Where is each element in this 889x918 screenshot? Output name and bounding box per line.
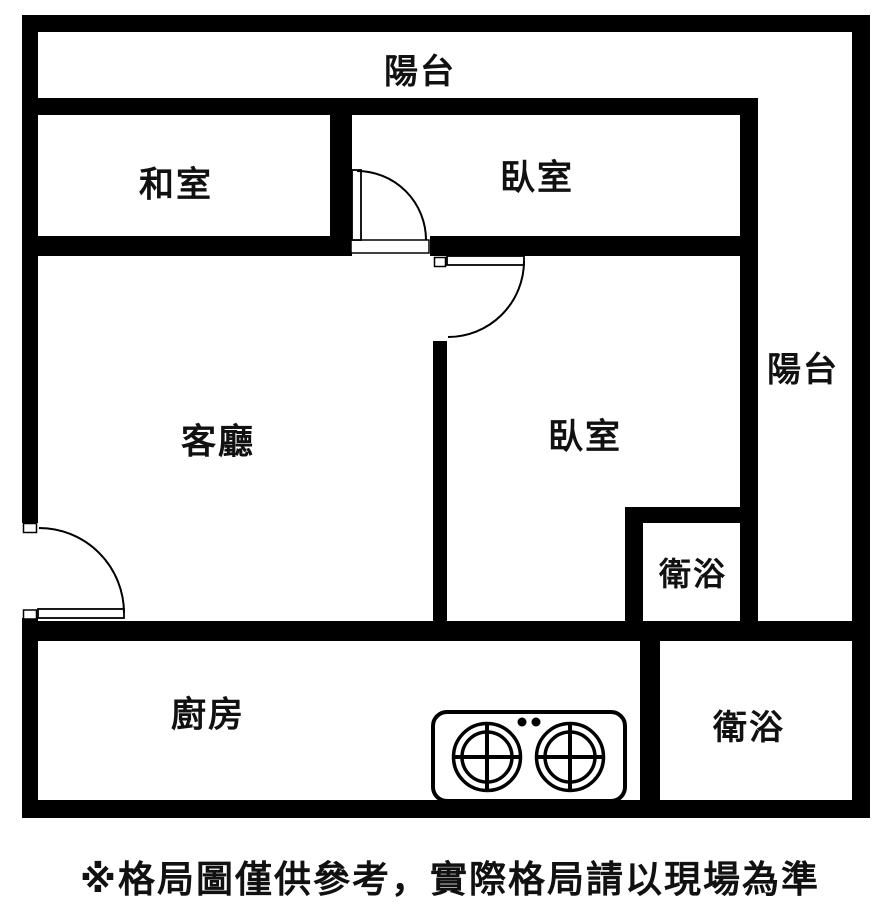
door-sill [24, 524, 37, 533]
stove-knob [532, 718, 541, 727]
door-bedroom-top [351, 170, 429, 253]
room-label-bedroom-top: 臥室 [500, 161, 574, 196]
door-leaf [38, 609, 124, 618]
room-label-living: 客廳 [181, 425, 255, 460]
stove-icon [433, 712, 625, 801]
door-living-room [24, 524, 125, 620]
room-label-bedroom-main: 臥室 [548, 420, 622, 455]
floor-plan: 陽台 和室 臥室 陽台 客廳 臥室 衛浴 廚房 衛浴 ※格局圖僅供參考，實際格局… [0, 0, 889, 918]
door-swing-arc [448, 261, 524, 337]
door-bedroom-main [435, 256, 525, 337]
room-label-bath-large: 衛浴 [713, 711, 785, 745]
room-label-tatami: 和室 [139, 168, 213, 203]
room-label-balcony-right: 陽台 [767, 353, 839, 387]
stove-knob [518, 718, 527, 727]
room-label-bath-small: 衛浴 [659, 558, 727, 590]
door-swing-arc [357, 171, 426, 240]
door-and-fixture-overlay [0, 0, 889, 918]
door-swing-arc [39, 528, 124, 613]
door-leaf [447, 256, 524, 265]
door-leaf [352, 170, 361, 240]
door-sill [351, 240, 429, 253]
room-label-balcony-top: 陽台 [384, 55, 456, 89]
disclaimer-text: ※格局圖僅供參考，實際格局請以現場為準 [80, 849, 820, 903]
door-sill [24, 610, 37, 619]
door-sill [435, 258, 446, 267]
room-label-kitchen: 廚房 [171, 698, 245, 733]
